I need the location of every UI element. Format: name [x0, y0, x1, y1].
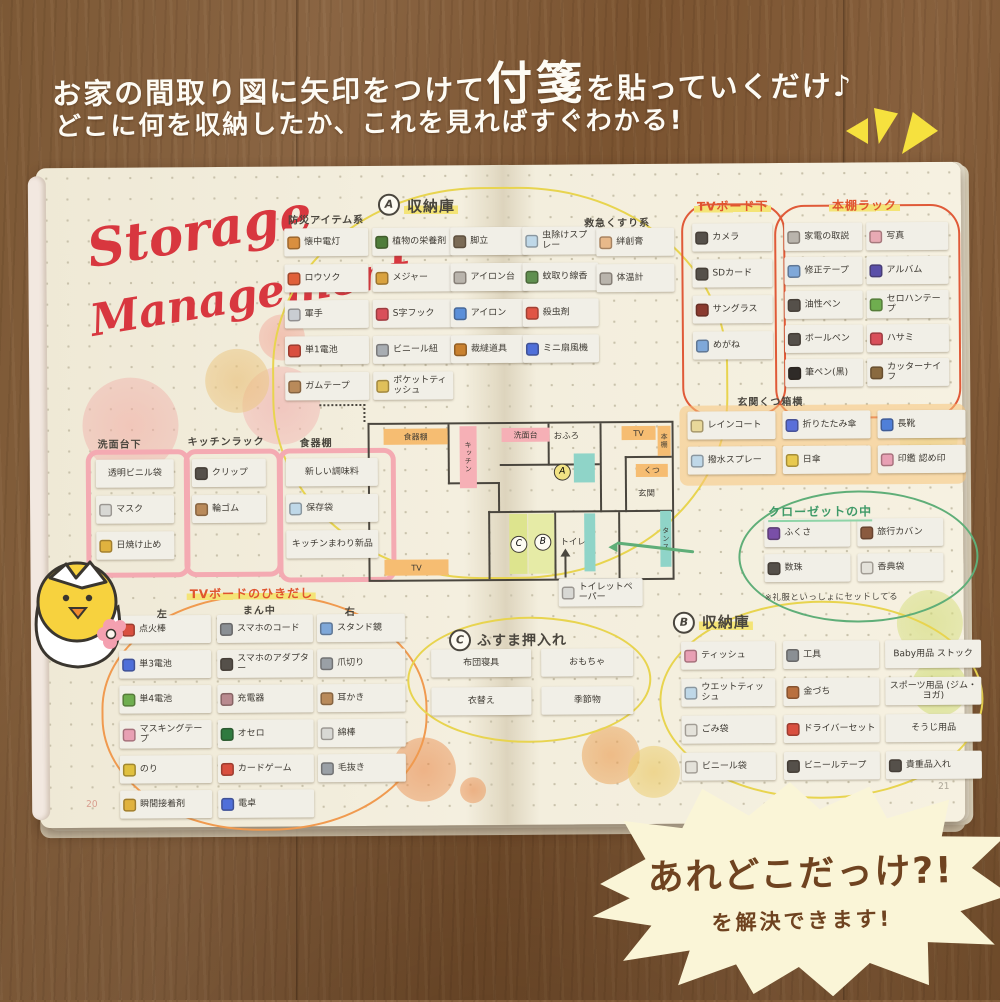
label-chip-text: 懐中電灯	[304, 237, 340, 247]
tools-icon	[786, 648, 799, 661]
label-chip: のり	[120, 755, 212, 784]
label-chip: オセロ	[218, 719, 314, 748]
section-title-tvdrawer: TVボードのひきだし	[187, 584, 317, 602]
ballpoint-pen-icon	[788, 332, 801, 345]
section-title-genkan: 玄関くつ箱横	[737, 393, 803, 408]
pocket-tissue-icon	[376, 379, 389, 392]
screwdriver-set-icon	[787, 722, 800, 735]
plan-badge-c: C	[510, 536, 527, 553]
rubber-band-icon	[195, 503, 208, 516]
label-chip-text: 植物の栄養剤	[392, 236, 446, 246]
label-chip-text: 油性ペン	[805, 300, 841, 310]
label-chip: 電卓	[218, 789, 314, 818]
label-chip-text: SDカード	[712, 268, 752, 278]
tvdrawer-col-left-title: 左	[157, 605, 168, 620]
plastic-bag-icon	[685, 760, 698, 773]
masking-tape-icon	[123, 728, 136, 741]
burst-line-2: を解決できます!	[711, 902, 892, 937]
label-chip: ドライバーセット	[784, 714, 880, 743]
correction-tape-icon	[787, 264, 800, 277]
section-genkan-items: レインコート折りたたみ傘長靴撥水スプレー日傘印鑑 認め印	[687, 410, 965, 475]
parasol-icon	[786, 453, 799, 466]
label-chip-text: カッターナイフ	[887, 362, 946, 383]
bandage-icon	[599, 236, 612, 249]
scissors-icon	[870, 332, 883, 345]
bug-spray-icon	[525, 234, 538, 247]
label-chip: ハサミ	[867, 324, 949, 353]
section-title-fusuma: ふすま押入れ	[477, 630, 567, 651]
wet-tissue-icon	[684, 686, 697, 699]
plan-label-toilet: トイレ	[560, 535, 586, 547]
section-closet-items: ふくさ旅行カバン数珠香典袋	[764, 518, 943, 582]
label-chip: アイロン台	[450, 263, 528, 292]
glue-icon	[123, 763, 136, 776]
sewing-kit-icon	[454, 343, 467, 356]
page-number-right: 21	[938, 782, 950, 792]
plan-wall	[488, 511, 490, 579]
cellophane-tape-icon	[870, 298, 883, 311]
section-storage-a-col2: 脚立アイロン台アイロン裁縫道具	[450, 227, 529, 364]
section-fusuma-items: 布団寝具おもちゃ衣替え季節物	[431, 648, 633, 715]
plan-badge-a: A	[554, 464, 571, 481]
thermometer-icon	[599, 272, 612, 285]
plan-wall	[498, 482, 500, 513]
yellow-triangle-icon	[846, 118, 868, 144]
label-chip-text: 修正テープ	[804, 266, 849, 276]
plan-wall	[625, 456, 627, 512]
tweezers-icon	[321, 762, 334, 775]
label-chip-text: マスキングテープ	[140, 724, 209, 745]
label-chip: レインコート	[687, 411, 775, 440]
label-chip-text: 虫除けスプレー	[542, 230, 595, 251]
s-hook-icon	[376, 307, 389, 320]
label-chip: 香典袋	[857, 553, 943, 582]
label-chip: マスキングテープ	[120, 720, 212, 749]
section-title-kyukyu: 救急くすり系	[584, 214, 650, 229]
label-chip: 単4電池	[119, 685, 211, 714]
label-chip: 写真	[866, 222, 948, 251]
label-chip: 耳かき	[317, 684, 405, 713]
label-chip-text: 爪切り	[337, 658, 364, 668]
label-chip: 布団寝具	[431, 649, 531, 678]
label-chip: 衣替え	[431, 687, 531, 716]
label-chip-text: トイレットペーパー	[579, 582, 640, 603]
notebook-spread: Storage Management 防災アイテム系 A 収納庫 救急くすり系 …	[36, 162, 966, 828]
plant-nutrient-icon	[375, 235, 388, 248]
label-chip-text: セロハンテープ	[887, 294, 946, 315]
label-chip: 輪ゴム	[192, 495, 266, 524]
tape-roll-icon	[288, 380, 301, 393]
photo-of-storage-journal: { "intro":{ "line1_pre":"お家の間取り図に矢印をつけて"…	[0, 0, 1000, 1000]
label-chip: カードゲーム	[218, 754, 314, 783]
plan-label-shokkidana: 食器棚	[384, 428, 448, 444]
tissue-box-icon	[684, 649, 697, 662]
section-kitchen-rack-items: クリップ輪ゴム	[192, 459, 266, 524]
hammer-icon	[786, 685, 799, 698]
closet-note: ※礼服といっしょにセットしてる	[765, 590, 898, 603]
label-chip-text: 衣替え	[468, 696, 495, 706]
insecticide-icon	[526, 306, 539, 319]
label-chip: マスク	[96, 495, 174, 524]
album-icon	[869, 264, 882, 277]
label-chip: 蚊取り線香	[522, 262, 598, 291]
label-chip-text: 殺虫剤	[543, 307, 570, 317]
label-chip: 脚立	[450, 227, 528, 256]
label-chip: 長靴	[877, 410, 965, 439]
label-chip: 貴重品入れ	[886, 751, 982, 780]
label-chip-text: 脚立	[470, 236, 488, 246]
label-chip-text: 単1電池	[305, 345, 338, 355]
label-chip: Baby用品 ストック	[885, 640, 981, 669]
label-chip: 数珠	[764, 554, 850, 583]
label-chip-text: ティッシュ	[701, 650, 746, 660]
label-chip-text: カメラ	[712, 232, 739, 242]
label-chip-text: ビニール紐	[393, 344, 438, 354]
label-chip-text: ドライバーセット	[804, 723, 876, 734]
section-title-storage-b: 収納庫	[699, 611, 753, 632]
label-chip-text: 工具	[803, 650, 821, 660]
section-bousai-items: 懐中電灯ロウソク軍手単1電池ガムテープ	[284, 228, 369, 401]
label-chip-text: サングラス	[713, 304, 758, 314]
calculator-icon	[221, 797, 234, 810]
label-chip: そうじ用品	[886, 714, 982, 743]
label-chip: SDカード	[692, 259, 772, 288]
label-chip-text: S字フック	[393, 308, 435, 318]
label-chip-text: ミニ扇風機	[543, 343, 588, 353]
label-chip: 単1電池	[285, 336, 369, 365]
floorplan: 食器棚 キッチン 洗面台 おふろ A TV 本棚 くつ 玄関 タンス C B ト…	[367, 421, 674, 582]
plan-highlight-toilet	[584, 513, 595, 571]
label-chip-text: 裁縫道具	[471, 344, 507, 354]
battery-icon	[288, 344, 301, 357]
label-chip-text: マスク	[116, 504, 143, 514]
label-chip-text: 絆創膏	[616, 237, 643, 247]
label-chip: 日傘	[783, 445, 871, 474]
super-glue-icon	[123, 798, 136, 811]
label-chip-text: ごみ袋	[702, 724, 729, 734]
section-title-hondana-rack: 本棚ラック	[829, 196, 900, 213]
sd-card-icon	[695, 267, 708, 280]
label-chip: 懐中電灯	[284, 228, 368, 257]
phone-adapter-icon	[220, 657, 233, 670]
label-chip: スマホのコード	[217, 614, 313, 643]
toilet-paper-chip: トイレットペーパー	[559, 578, 643, 607]
notebook-cover-edge	[28, 176, 50, 820]
seal-stamp-icon	[881, 453, 894, 466]
label-chip-text: 瞬間接着剤	[140, 799, 185, 809]
plan-wall	[618, 512, 620, 578]
label-chip-text: 撥水スプレー	[708, 455, 762, 465]
label-chip: 修正テープ	[784, 256, 862, 285]
label-chip: 綿棒	[318, 719, 406, 748]
clip-icon	[195, 467, 208, 480]
label-chip: 軍手	[285, 300, 369, 329]
cotton-swab-icon	[321, 727, 334, 740]
plan-highlight-a	[574, 453, 595, 482]
label-chip: トイレットペーパー	[559, 578, 643, 607]
othello-icon	[221, 727, 234, 740]
label-chip: クリップ	[192, 459, 266, 488]
label-chip-text: アイロン	[471, 308, 507, 318]
section-mushi-items: 虫除けスプレー蚊取り線香殺虫剤ミニ扇風機	[522, 226, 599, 363]
yellow-triangle-icon	[902, 112, 938, 154]
label-chip-text: スタンド鏡	[337, 623, 382, 633]
aaa-battery-icon	[122, 693, 135, 706]
label-chip: アイロン	[451, 299, 529, 328]
prayer-beads-icon	[767, 562, 780, 575]
page-number-left: 20	[86, 800, 98, 810]
badge-a: A	[378, 194, 400, 216]
plan-badge-b: B	[534, 534, 551, 551]
section-title-closet: クローゼットの中	[768, 502, 872, 522]
label-chip: 裁縫道具	[451, 335, 529, 364]
label-chip: 殺虫剤	[523, 298, 599, 327]
label-chip: スマホのアダプター	[217, 649, 313, 678]
watercolor-circle	[205, 349, 269, 413]
label-chip: メジャー	[372, 263, 452, 292]
label-chip: 透明ビニル袋	[96, 459, 174, 488]
label-chip: 撥水スプレー	[688, 446, 776, 475]
label-chip-text: Baby用品 ストック	[893, 649, 973, 660]
label-chip: 旅行カバン	[857, 518, 943, 547]
garbage-bag-icon	[685, 723, 698, 736]
label-chip-text: 日傘	[803, 455, 821, 465]
card-game-icon	[221, 762, 234, 775]
section-senmendai-items: 透明ビニル袋マスク日焼け止め	[96, 459, 175, 560]
label-chip: ビニールテープ	[784, 751, 880, 780]
label-chip-text: ハサミ	[887, 333, 914, 343]
label-chip-text: ビニールテープ	[804, 760, 867, 771]
label-chip: ウエットティッシュ	[681, 678, 775, 707]
label-chip: カメラ	[692, 223, 772, 252]
plan-wall	[448, 424, 450, 484]
label-chip: 工具	[783, 640, 879, 669]
plan-label-tv-bottom: TV	[384, 559, 448, 575]
raincoat-icon	[690, 419, 703, 432]
label-chip-text: 保存袋	[306, 503, 333, 513]
condolence-envelope-icon	[860, 561, 873, 574]
label-chip-text: ウエットティッシュ	[701, 682, 772, 703]
tvdrawer-col-right-title: 右	[345, 603, 356, 618]
label-chip: 体温計	[596, 264, 674, 293]
plan-label-tv-top: TV	[622, 426, 656, 440]
section-storage-b-col2: 工具金づちドライバーセットビニールテープ	[783, 640, 880, 780]
label-chip-text: カードゲーム	[238, 763, 292, 773]
label-chip-text: レインコート	[707, 420, 761, 430]
label-chip-text: ロウソク	[304, 273, 340, 283]
badge-b: B	[673, 612, 695, 634]
label-chip: アルバム	[866, 256, 948, 285]
label-chip-text: アイロン台	[470, 272, 515, 282]
label-chip: 瞬間接着剤	[120, 790, 212, 819]
section-storage-b-col1: ティッシュウエットティッシュごみ袋ビニール袋	[681, 641, 776, 781]
label-chip: 植物の栄養剤	[372, 227, 452, 256]
photo-icon	[869, 230, 882, 243]
intro-line-2: どこに何を収納したか、これを見ればすぐわかる!	[55, 100, 684, 144]
label-chip: 印鑑 認め印	[878, 445, 966, 474]
plan-label-genkan: 玄関	[638, 487, 655, 499]
section-title-shokkidana: 食器棚	[300, 434, 333, 449]
sunscreen-icon	[99, 539, 112, 552]
label-chip: ティッシュ	[681, 641, 775, 670]
section-title-bousai: 防災アイテム系	[288, 211, 364, 227]
label-chip-text: スマホのコード	[237, 623, 300, 634]
label-chip-text: 印鑑 認め印	[898, 454, 946, 464]
permanent-marker-icon	[788, 298, 801, 311]
section-tvdrawer-right: スタンド鏡爪切り耳かき綿棒毛抜き	[317, 614, 406, 783]
label-chip: ロウソク	[284, 264, 368, 293]
section-title-storage-a: 収納庫	[404, 195, 458, 216]
label-chip: 油性ペン	[785, 290, 863, 319]
manual-icon	[787, 230, 800, 243]
label-chip-text: 旅行カバン	[877, 527, 923, 537]
yellow-triangle-icon	[874, 108, 898, 144]
storage-b-title-text: 収納庫	[699, 613, 753, 631]
label-chip-text: 耳かき	[337, 693, 364, 703]
plan-label-kitchen: キッチン	[460, 426, 477, 488]
tvdrawer-col-mid-title: まん中	[243, 602, 276, 617]
measuring-tape-icon	[375, 271, 388, 284]
label-chip-text: 日焼け止め	[116, 540, 161, 550]
plan-label-tansu: タンス	[660, 511, 671, 567]
tvdrawer-title-text: TVボードのひきだし	[187, 586, 317, 601]
toilet-arrow	[564, 556, 566, 578]
label-chip: 季節物	[541, 686, 633, 715]
folding-umbrella-icon	[785, 418, 798, 431]
label-chip-text: 数珠	[784, 563, 802, 573]
storage-a-title-text: 収納庫	[404, 197, 458, 215]
label-chip: おもちゃ	[541, 648, 633, 677]
label-chip-text: おもちゃ	[569, 657, 605, 667]
ear-pick-icon	[320, 692, 333, 705]
label-chip-text: オセロ	[238, 729, 265, 739]
label-chip-text: スマホのアダプター	[237, 653, 310, 674]
chick-in-egg-illustration	[22, 552, 134, 672]
section-title-kitchen-rack: キッチンラック	[188, 433, 265, 449]
label-chip-text: ボールペン	[805, 334, 850, 344]
label-chip-text: 綿棒	[338, 728, 356, 738]
label-chip: 折りたたみ傘	[782, 410, 870, 439]
iron-icon	[454, 307, 467, 320]
label-chip-text: 透明ビニル袋	[108, 468, 162, 478]
mosquito-coil-icon	[525, 270, 538, 283]
rain-boots-icon	[880, 418, 893, 431]
label-chip: セロハンテープ	[867, 290, 949, 319]
label-chip-text: 季節物	[574, 695, 601, 705]
label-chip-text: 長靴	[897, 419, 915, 429]
label-chip: めがね	[693, 331, 773, 360]
label-chip-text: ふくさ	[784, 528, 811, 538]
section-title-senmendai: 洗面台下	[98, 436, 142, 451]
charger-icon	[220, 692, 233, 705]
label-chip: スタンド鏡	[317, 614, 405, 643]
label-chip-text: 筆ペン(黒)	[805, 368, 848, 378]
label-chip-text: めがね	[713, 340, 740, 350]
label-chip-text: 単3電池	[139, 659, 172, 669]
hondana-title-text: 本棚ラック	[829, 198, 900, 212]
plan-label-senmendai: 洗面台	[502, 428, 550, 442]
label-chip-text: メジャー	[392, 272, 428, 282]
section-hondana-col2: 写真アルバムセロハンテープハサミカッターナイフ	[866, 222, 949, 387]
section-kyukyu-items: 絆創膏体温計	[596, 228, 674, 293]
label-chip: スポーツ用品 (ジム・ヨガ)	[885, 677, 981, 706]
label-chip: ガムテープ	[285, 372, 369, 401]
label-chip: 保存袋	[286, 494, 378, 523]
sunglasses-icon	[696, 303, 709, 316]
label-chip-text: 軍手	[305, 309, 323, 319]
label-chip-text: 金づち	[803, 687, 830, 697]
water-repellent-spray-icon	[691, 454, 704, 467]
mask-icon	[99, 503, 112, 516]
plan-wall	[600, 423, 603, 512]
plan-wall	[488, 510, 672, 513]
label-chip: 虫除けスプレー	[522, 226, 598, 255]
toilet-paper-icon	[562, 586, 575, 599]
label-chip-text: 輪ゴム	[212, 504, 239, 514]
fukusa-icon	[767, 527, 780, 540]
label-chip: サングラス	[693, 295, 773, 324]
label-chip-text: 毛抜き	[338, 763, 365, 773]
label-chip: 絆創膏	[596, 228, 674, 257]
camera-icon	[695, 231, 708, 244]
label-chip: 金づち	[783, 677, 879, 706]
label-chip-text: 新しい調味料	[305, 467, 359, 477]
section-tvboard-shita-items: カメラSDカードサングラスめがね	[692, 223, 773, 360]
watercolor-circle	[628, 746, 680, 798]
label-chip-text: 蚊取り線香	[542, 271, 587, 281]
label-chip-text: スポーツ用品 (ジム・ヨガ)	[888, 681, 978, 702]
badge-c: C	[449, 629, 471, 651]
plan-label-hondana: 本棚	[658, 426, 671, 456]
nail-clipper-icon	[320, 657, 333, 670]
label-chip: ボールペン	[785, 324, 863, 353]
label-chip-text: ガムテープ	[305, 381, 350, 391]
phone-cord-icon	[220, 622, 233, 635]
label-chip: 毛抜き	[318, 754, 406, 783]
label-chip: 充電器	[217, 684, 313, 713]
vinyl-string-icon	[376, 343, 389, 356]
label-chip: ポケットティッシュ	[373, 371, 453, 400]
plan-label-ofuro: おふろ	[554, 429, 580, 441]
dotted-connector	[319, 404, 365, 422]
label-chip: 爪切り	[317, 649, 405, 678]
stand-mirror-icon	[320, 622, 333, 635]
plan-wall	[625, 456, 672, 458]
section-title-tvboard-shita: TVボード下	[694, 197, 772, 215]
chick-sticker	[22, 552, 134, 676]
label-chip-text: 電卓	[238, 799, 256, 809]
glasses-icon	[696, 339, 709, 352]
stepladder-icon	[453, 235, 466, 248]
label-chip-text: そうじ用品	[911, 723, 956, 733]
plan-label-kutsu: くつ	[636, 464, 668, 477]
label-chip: ごみ袋	[682, 715, 776, 744]
mini-fan-icon	[526, 342, 539, 355]
flashlight-icon	[287, 236, 300, 249]
brush-pen-icon	[788, 366, 801, 379]
label-chip-text: 点火棒	[139, 624, 166, 634]
section-storage-b-col3: Baby用品 ストックスポーツ用品 (ジム・ヨガ)そうじ用品貴重品入れ	[885, 640, 982, 780]
cutter-knife-icon	[870, 366, 883, 379]
label-chip: カッターナイフ	[867, 358, 949, 387]
storage-bag-icon	[289, 502, 302, 515]
travel-bag-icon	[860, 526, 873, 539]
label-chip-text: 貴重品入れ	[906, 760, 951, 770]
label-chip-text: 体温計	[616, 273, 643, 283]
section-tvdrawer-mid: スマホのコードスマホのアダプター充電器オセロカードゲーム電卓	[217, 614, 314, 818]
label-chip-text: 折りたたみ傘	[802, 419, 856, 429]
label-chip-text: 写真	[886, 231, 904, 241]
